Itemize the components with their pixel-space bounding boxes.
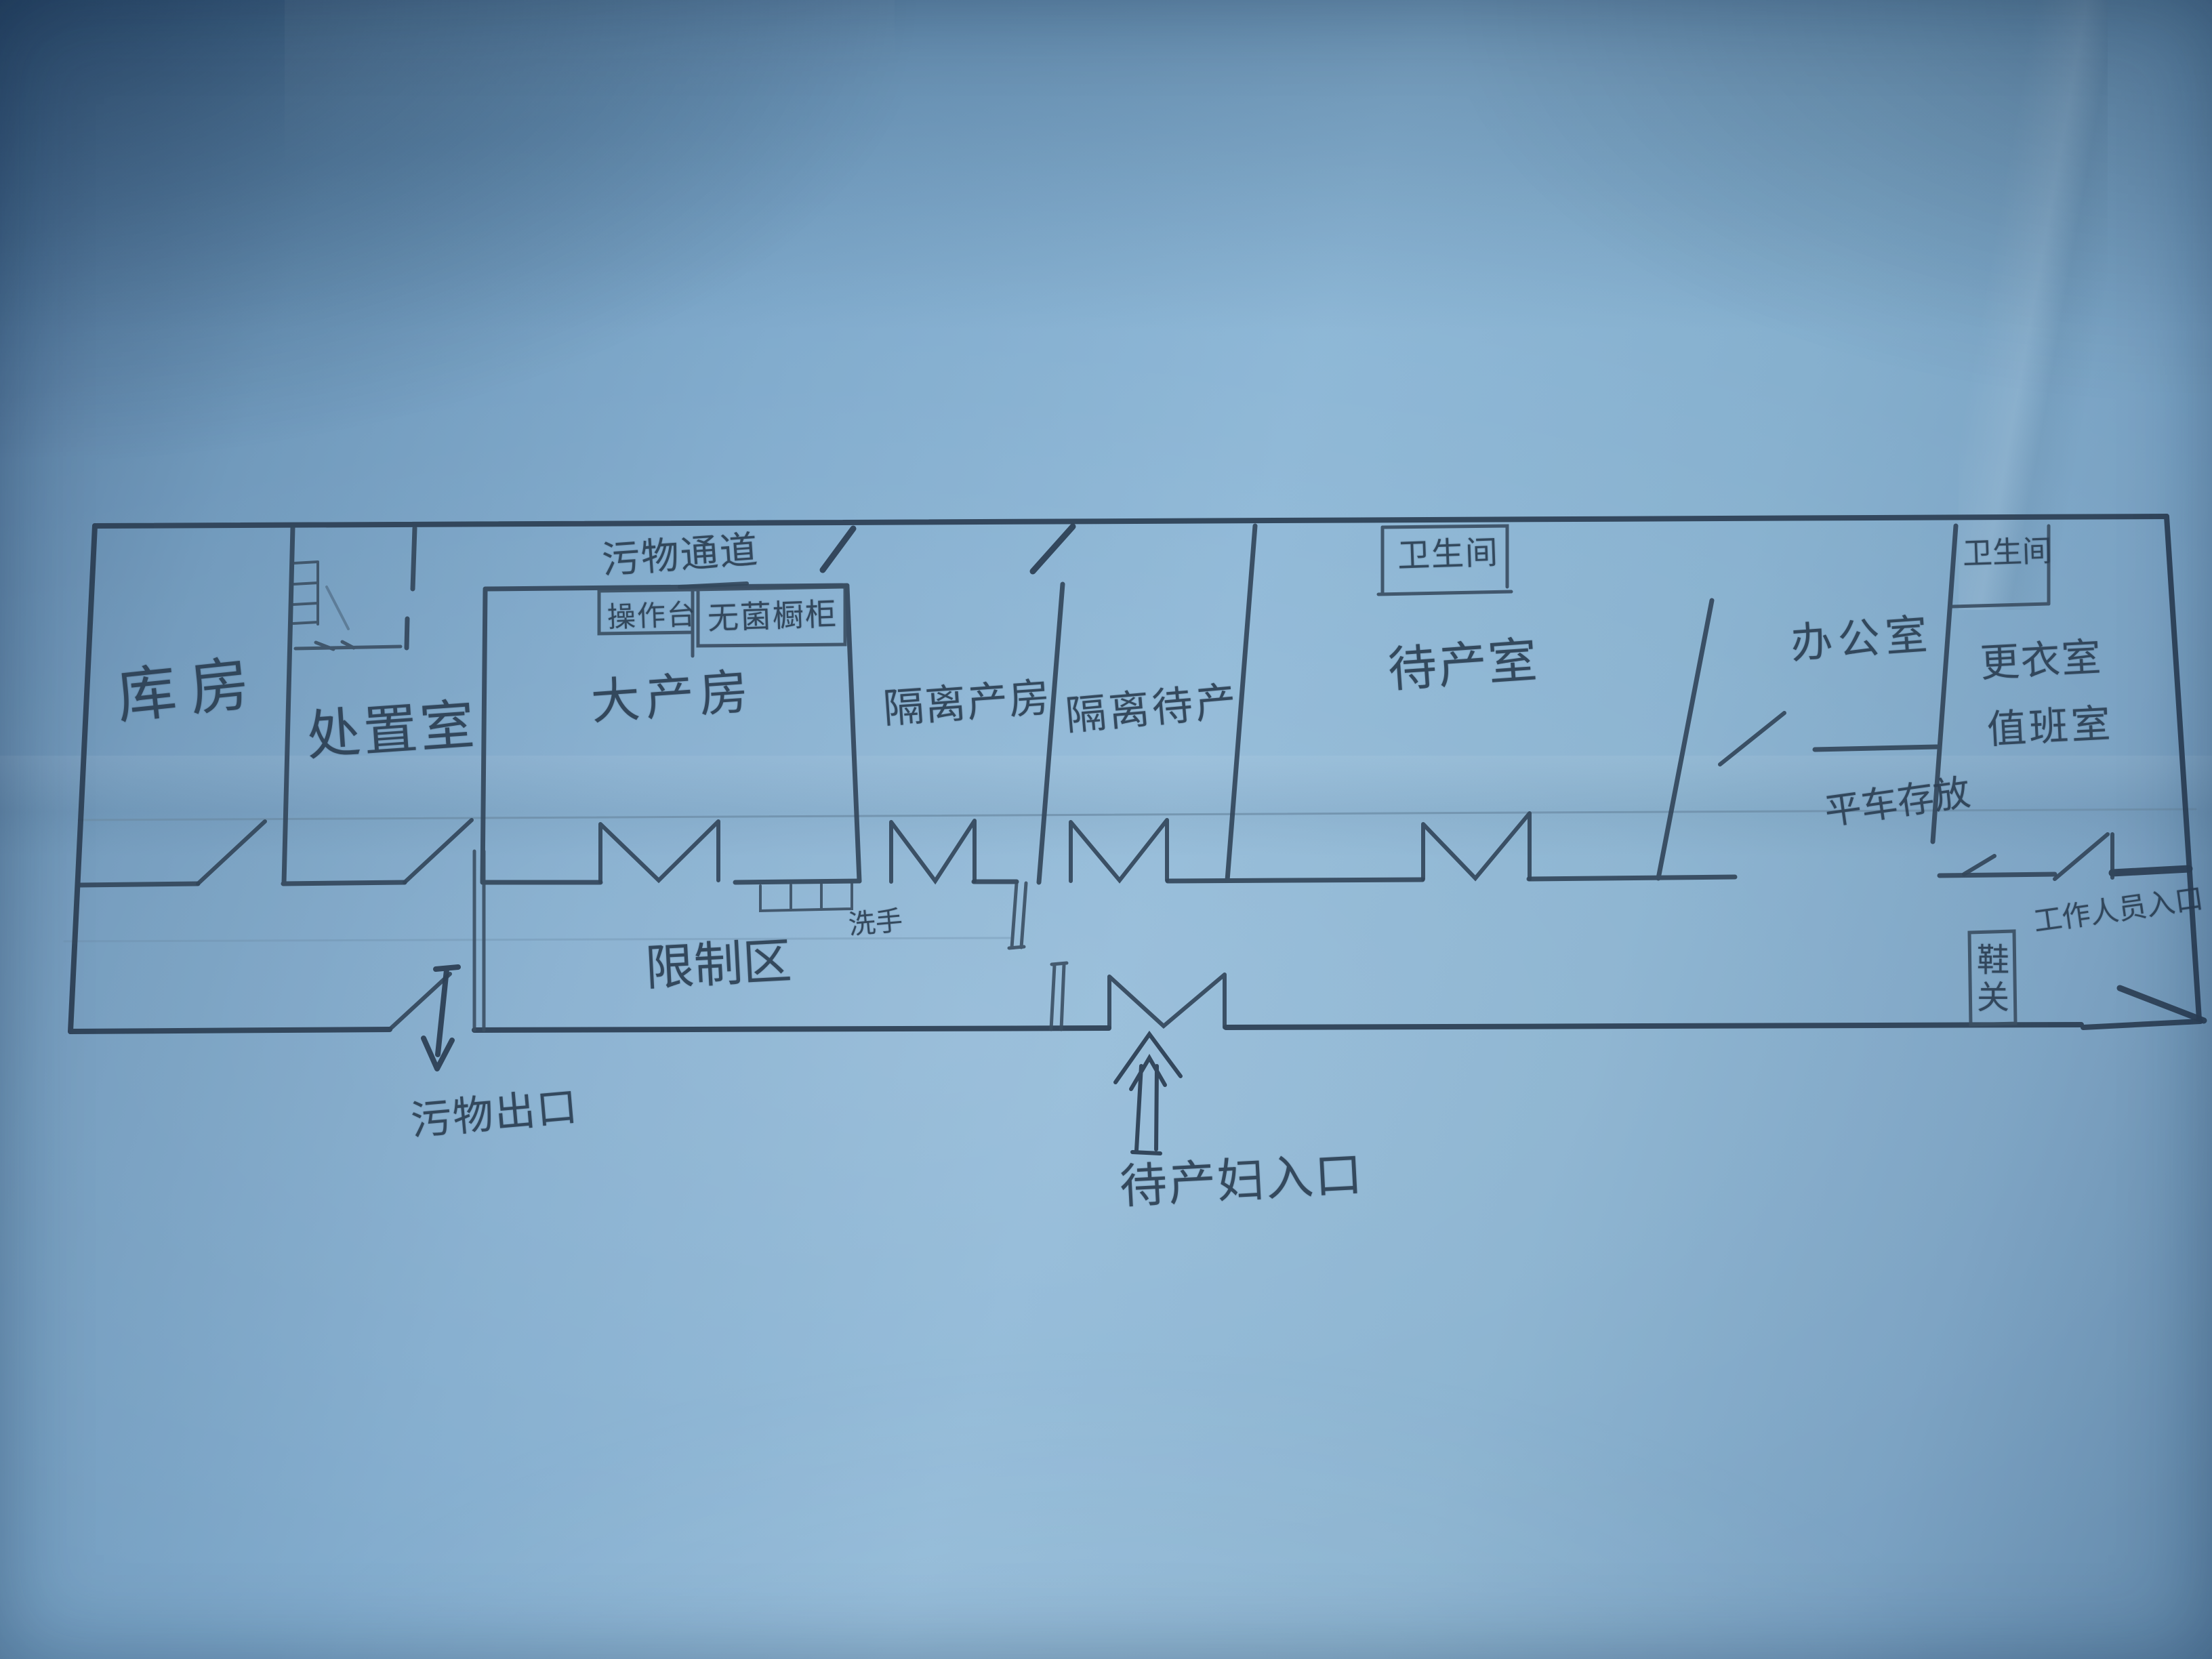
corridor-guideline xyxy=(64,809,2196,941)
label-sterile-cabinet: 无菌橱柜 xyxy=(707,596,838,638)
label-disposal-room: 处置室 xyxy=(304,692,479,769)
label-hand-wash: 洗手 xyxy=(847,905,904,942)
floor-plan-drawing xyxy=(0,0,2212,1659)
label-office: 办公室 xyxy=(1789,609,1935,670)
double-doors xyxy=(600,813,1530,1028)
label-waiting-delivery-room: 待产室 xyxy=(1386,630,1540,699)
pass-through-counter xyxy=(295,642,401,649)
staff-corridor-wall xyxy=(2112,869,2189,873)
hand-wash-sink xyxy=(760,884,852,911)
label-toilet-left: 卫生间 xyxy=(1397,533,1500,576)
label-duty-room: 值班室 xyxy=(1986,700,2114,754)
label-storage-room: 库房 xyxy=(113,647,266,733)
label-main-delivery-room: 大产房 xyxy=(589,662,755,732)
label-toilet-right: 卫生间 xyxy=(1962,534,2053,573)
label-operating-counter: 操作台 xyxy=(607,598,697,635)
floor-plan-photo: 库房 处置室 污物通道 操作台 无菌橱柜 大产房 隔离产房 隔离待产 卫生间 待… xyxy=(0,0,2212,1659)
label-shoe-cabinet: 鞋关 xyxy=(1973,942,2013,1017)
mothers-entrance-arrow xyxy=(1115,1034,1181,1153)
label-restricted-area: 限制区 xyxy=(644,931,793,998)
hatch-shelves xyxy=(293,562,348,629)
label-changing-room: 更衣室 xyxy=(1979,634,2103,687)
outer-walls xyxy=(70,516,2200,1031)
